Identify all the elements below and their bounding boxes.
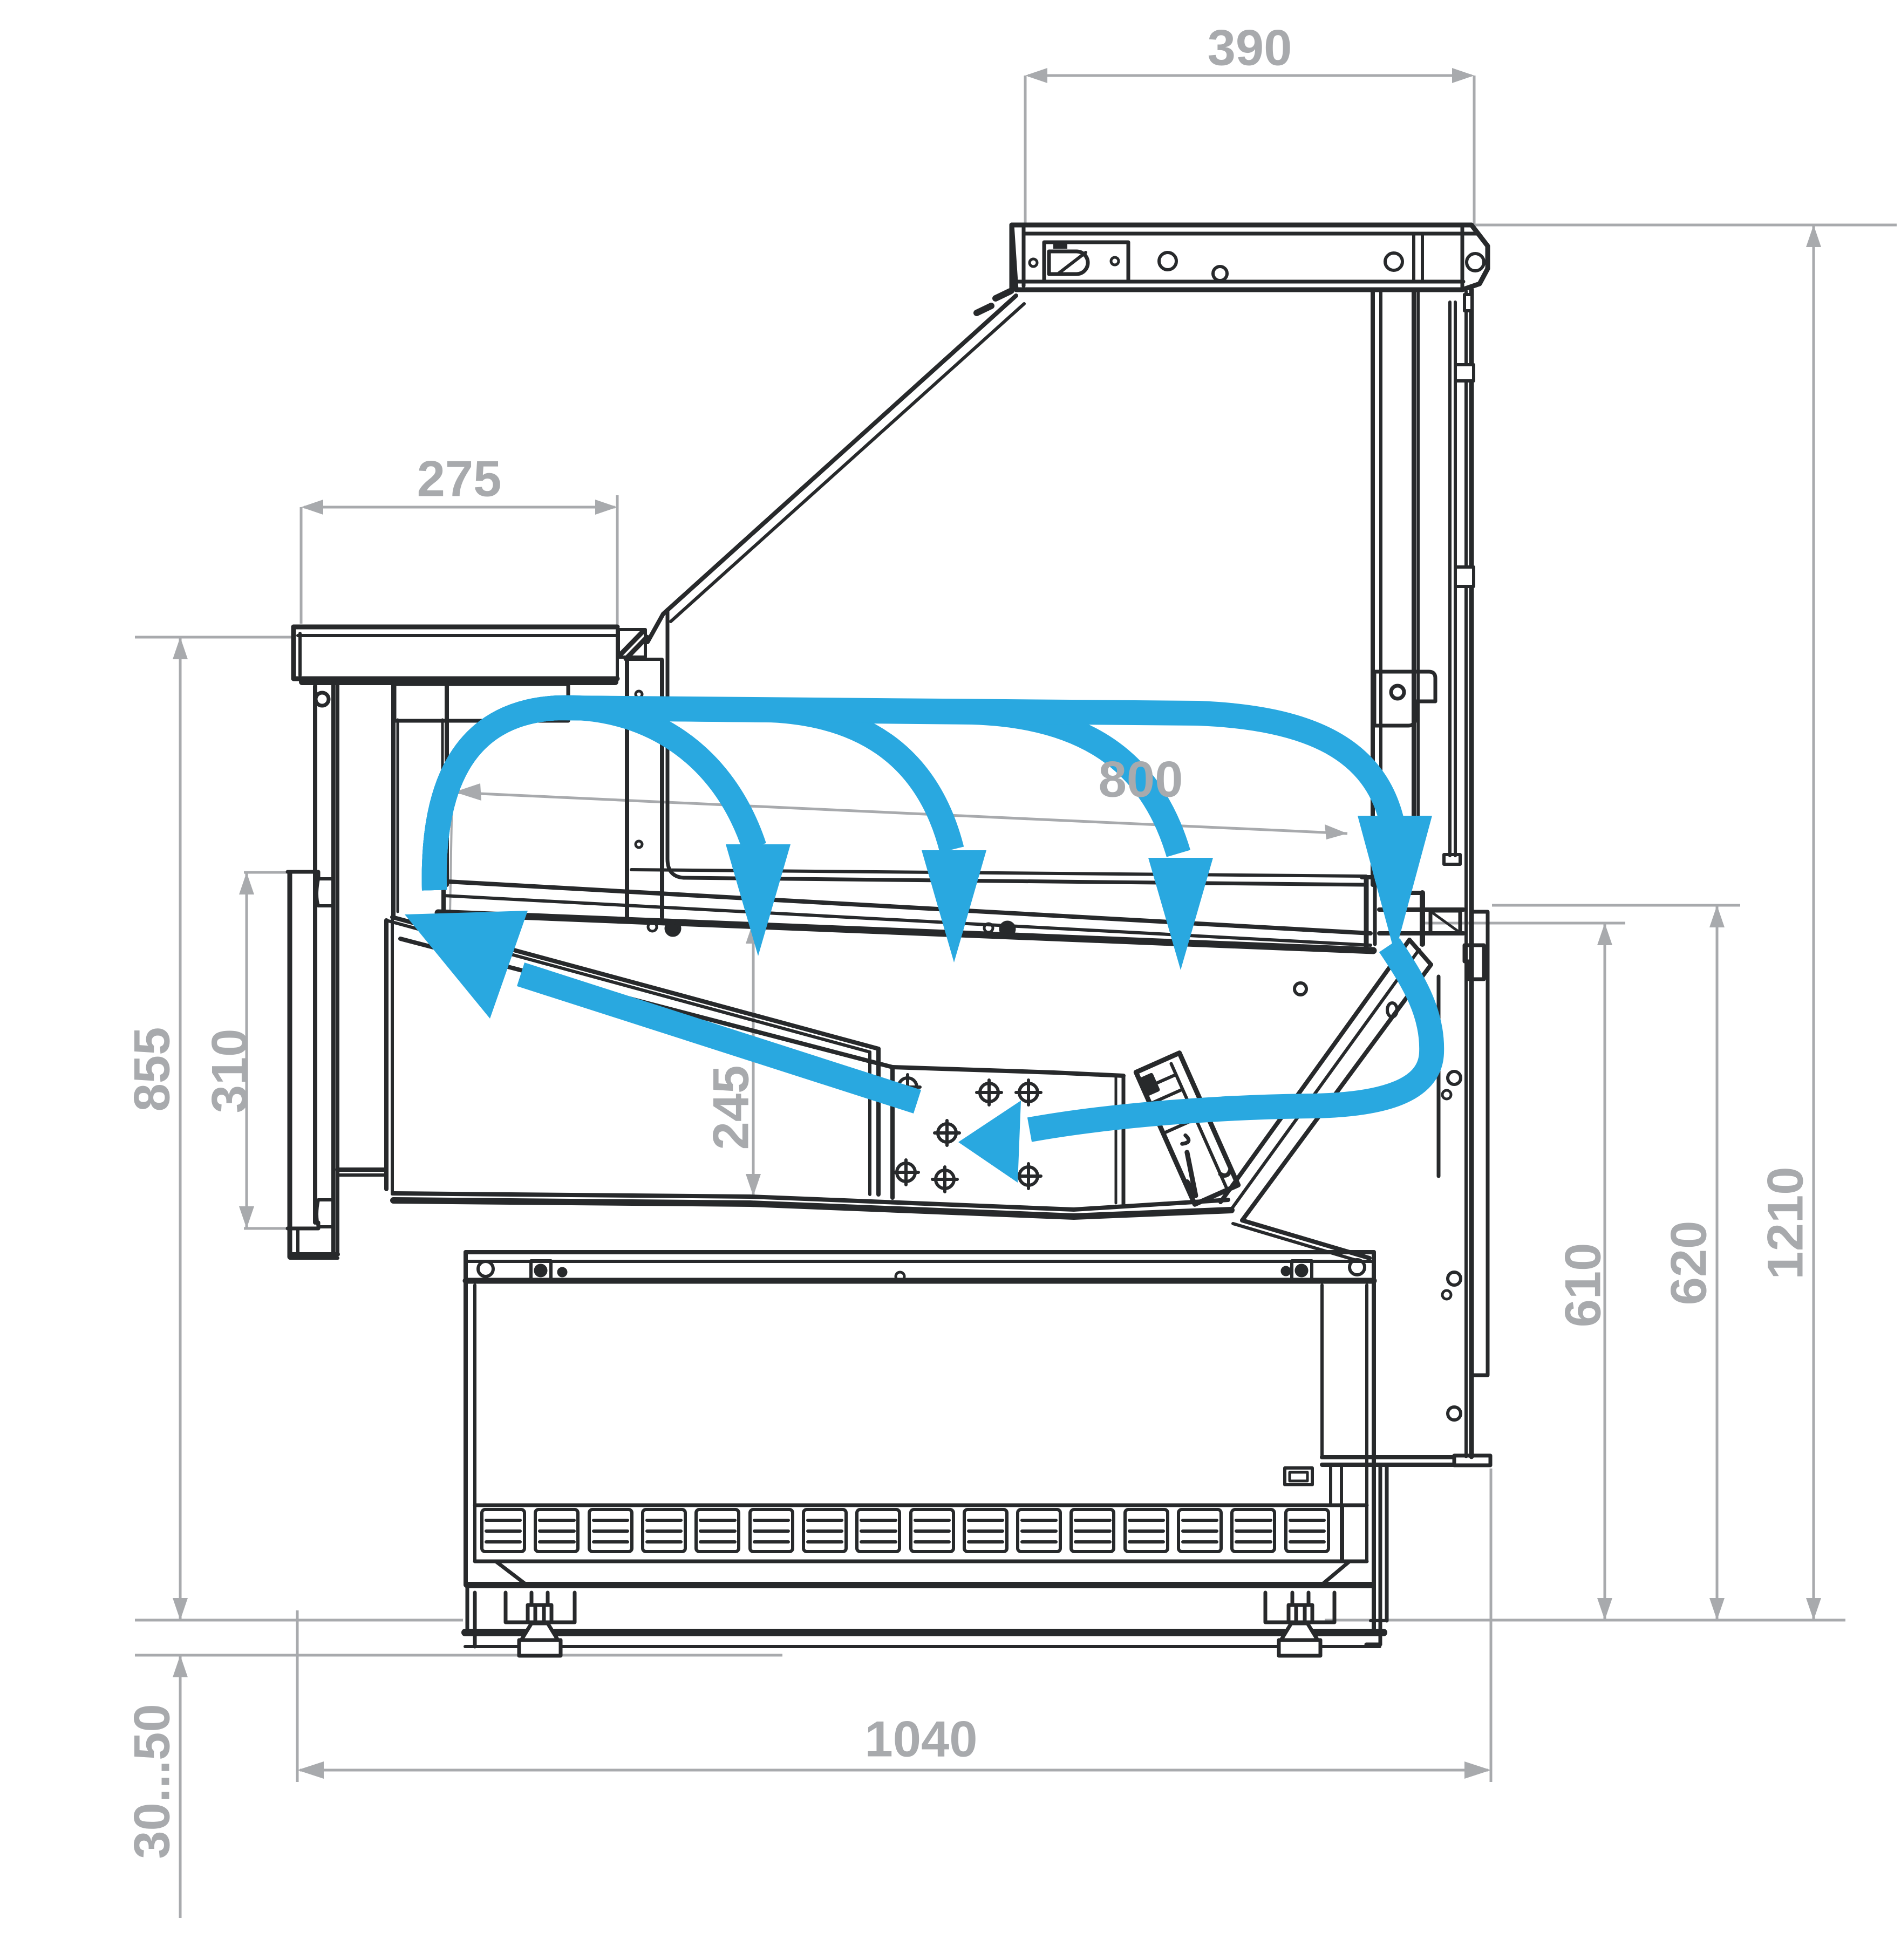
svg-text:610: 610	[1555, 1243, 1611, 1328]
svg-text:855: 855	[124, 1027, 180, 1112]
svg-text:620: 620	[1660, 1221, 1717, 1306]
svg-text:800: 800	[1099, 751, 1183, 808]
svg-text:275: 275	[417, 450, 502, 507]
svg-text:245: 245	[703, 1066, 759, 1150]
svg-text:30...50: 30...50	[124, 1704, 180, 1859]
svg-text:310: 310	[201, 1029, 258, 1114]
svg-text:1040: 1040	[864, 1711, 977, 1767]
svg-text:1210: 1210	[1757, 1166, 1814, 1279]
svg-text:390: 390	[1208, 19, 1292, 76]
